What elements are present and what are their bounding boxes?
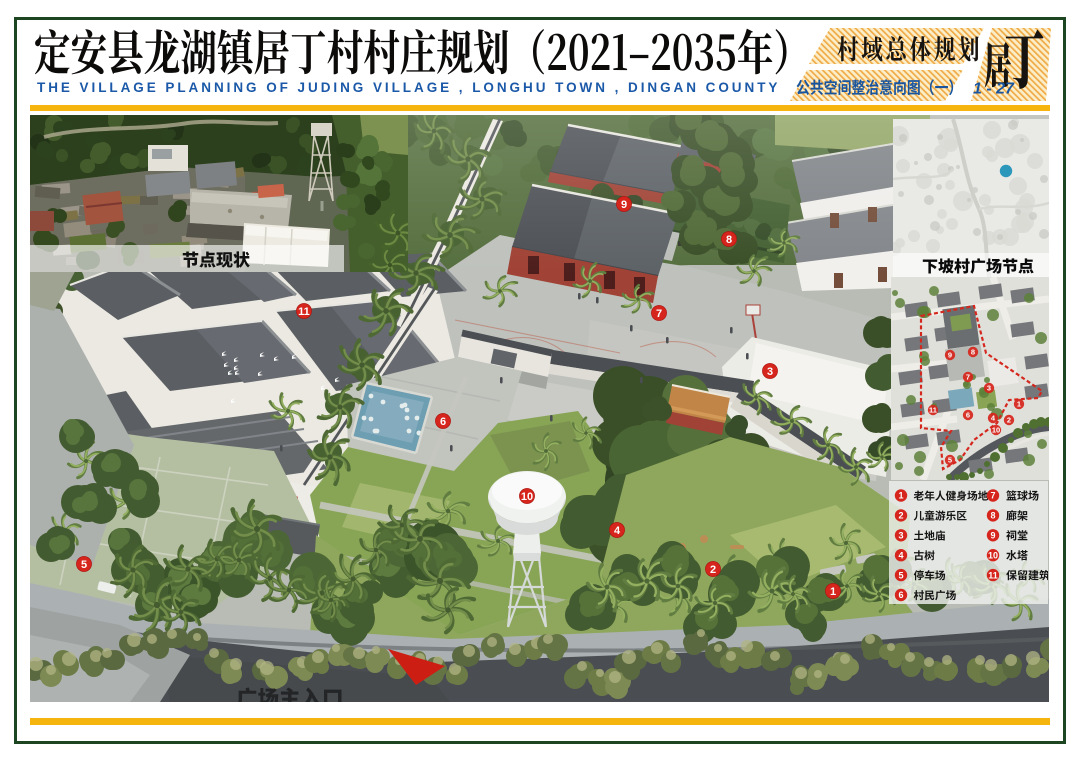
svg-text:3: 3 [767, 366, 773, 378]
svg-text:5: 5 [898, 570, 903, 580]
svg-text:7: 7 [990, 491, 995, 501]
svg-text:1: 1 [830, 586, 836, 598]
svg-text:7: 7 [656, 308, 662, 320]
svg-text:11: 11 [298, 306, 310, 318]
svg-text:9: 9 [621, 199, 627, 211]
svg-text:9: 9 [948, 351, 952, 360]
svg-text:8: 8 [726, 234, 732, 246]
svg-text:6: 6 [898, 590, 903, 600]
svg-text:3: 3 [898, 531, 903, 541]
svg-text:1: 1 [898, 491, 903, 501]
svg-text:5: 5 [81, 559, 87, 571]
svg-text:1 - 27: 1 - 27 [973, 81, 1015, 98]
svg-text:10: 10 [988, 550, 998, 560]
svg-text:3: 3 [987, 384, 991, 393]
svg-text:2: 2 [1007, 416, 1011, 425]
svg-text:7: 7 [966, 373, 970, 382]
svg-text:10: 10 [521, 491, 533, 503]
svg-text:8: 8 [990, 511, 995, 521]
svg-text:10: 10 [992, 426, 1000, 435]
svg-text:5: 5 [948, 456, 952, 465]
svg-text:4: 4 [614, 525, 621, 537]
svg-text:4: 4 [898, 550, 903, 560]
svg-text:2: 2 [898, 511, 903, 521]
svg-text:11: 11 [988, 570, 998, 580]
svg-text:1: 1 [1017, 400, 1021, 409]
svg-text:8: 8 [971, 348, 975, 357]
svg-text:11: 11 [929, 406, 937, 415]
svg-text:6: 6 [440, 416, 446, 428]
svg-text:9: 9 [990, 531, 995, 541]
svg-text:2: 2 [710, 564, 716, 576]
svg-text:6: 6 [966, 411, 970, 420]
